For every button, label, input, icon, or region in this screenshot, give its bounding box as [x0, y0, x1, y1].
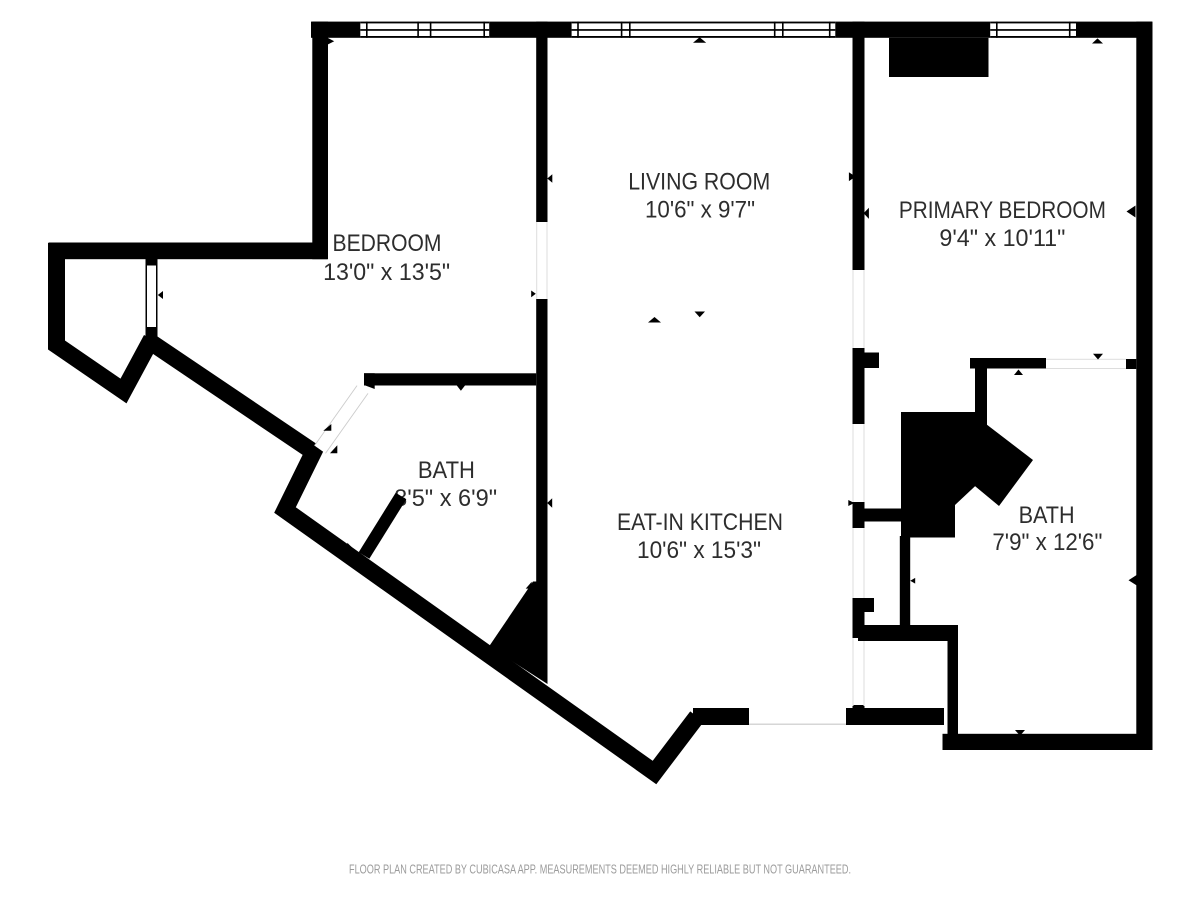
svg-text:10'6" x 9'7": 10'6" x 9'7" [645, 197, 755, 224]
svg-text:BATH: BATH [418, 457, 475, 484]
svg-text:FLOOR PLAN CREATED BY CUBICASA: FLOOR PLAN CREATED BY CUBICASA APP. MEAS… [349, 863, 851, 877]
svg-text:7'9" x 12'6": 7'9" x 12'6" [992, 529, 1102, 556]
svg-text:BEDROOM: BEDROOM [333, 230, 442, 257]
svg-text:EAT-IN KITCHEN: EAT-IN KITCHEN [617, 509, 783, 536]
svg-text:10'6" x 15'3": 10'6" x 15'3" [637, 537, 761, 564]
svg-text:8'5" x 6'9": 8'5" x 6'9" [394, 485, 497, 512]
svg-text:PRIMARY BEDROOM: PRIMARY BEDROOM [899, 197, 1106, 224]
svg-text:LIVING ROOM: LIVING ROOM [628, 168, 770, 195]
svg-text:13'0" x 13'5": 13'0" x 13'5" [323, 259, 450, 286]
svg-text:9'4" x 10'11": 9'4" x 10'11" [939, 225, 1065, 252]
svg-text:BATH: BATH [1019, 502, 1075, 529]
